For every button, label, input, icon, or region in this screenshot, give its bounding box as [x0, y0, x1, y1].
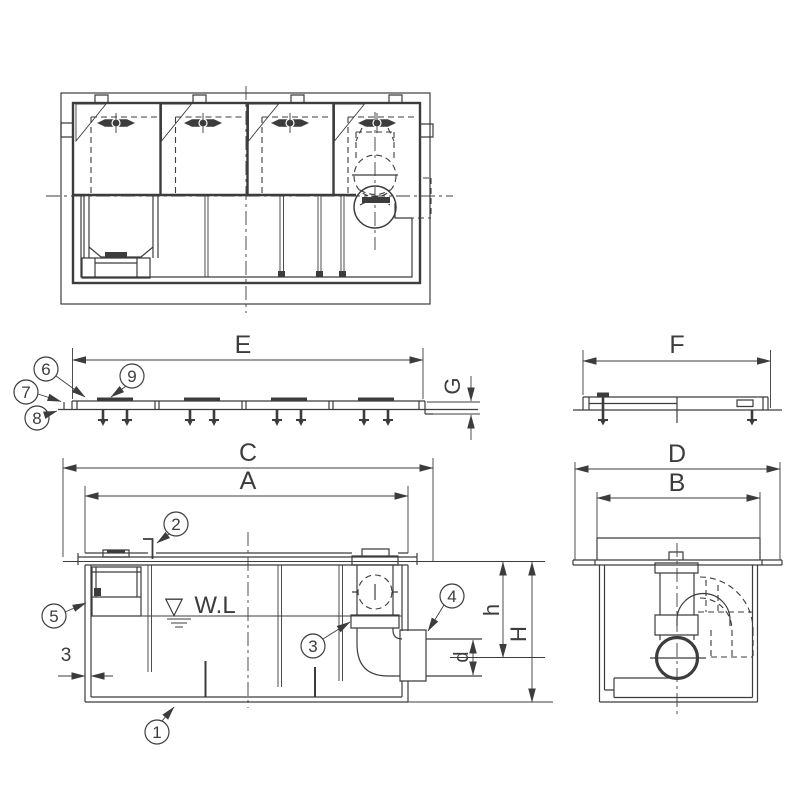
dim-label-A: A	[240, 467, 257, 495]
callout-number-8: 8	[32, 409, 41, 428]
lid-handle-icon	[184, 113, 222, 133]
dim-label-F: F	[669, 331, 684, 359]
dim-label-wall-thickness: 3	[61, 645, 72, 666]
water-level-mark: ▽ W.L	[165, 592, 236, 627]
callout-6: 6	[34, 357, 85, 397]
plan-baffle-feet	[278, 271, 346, 277]
lid-anchor-stems	[103, 410, 388, 421]
lid-frame-lines	[58, 401, 478, 414]
technical-drawing-page: E G 6 7 8 9 F	[0, 0, 800, 800]
leader-3	[323, 622, 350, 639]
inlet-pipe-stub	[143, 539, 153, 559]
callout-4: 4	[428, 584, 464, 631]
section-view: C A ▽ W.L 3 d h H 1	[42, 439, 553, 744]
callout-number-3: 3	[308, 637, 317, 656]
callout-7: 7	[14, 380, 61, 404]
water-level-ticks	[167, 619, 191, 627]
dim-label-G: G	[440, 377, 465, 394]
lid-handle-icon	[97, 113, 135, 133]
callout-9: 9	[111, 364, 144, 397]
end-elbow-hidden-lines	[698, 577, 753, 657]
callout-5: 5	[42, 603, 86, 628]
section-weirs	[206, 661, 316, 697]
dim-label-H: H	[506, 626, 531, 642]
callout-number-2: 2	[171, 515, 180, 534]
dim-label-E: E	[235, 331, 252, 359]
lid-end-handle-cap	[597, 393, 609, 398]
callout-2: 2	[157, 512, 188, 543]
basket-handle-bar	[105, 252, 127, 257]
lid-side-view: E G 6 7 8 9	[14, 331, 480, 440]
dim-label-B: B	[669, 469, 686, 497]
callout-number-6: 6	[41, 360, 50, 379]
lid-handle-icon	[358, 113, 396, 133]
callout-8: 8	[25, 406, 57, 430]
leader-1	[162, 707, 174, 721]
callout-number-1: 1	[152, 723, 161, 742]
plan-baffle-plates	[205, 196, 344, 277]
leader-8	[48, 411, 57, 414]
plan-view	[46, 86, 453, 313]
callout-1: 1	[145, 707, 174, 744]
callout-number-4: 4	[447, 587, 456, 606]
grease-trap-drawing: E G 6 7 8 9 F	[0, 0, 800, 800]
lid-end-view: F	[573, 331, 782, 426]
section-baffles	[148, 565, 343, 687]
plan-strainer-basket	[82, 196, 158, 278]
section-strainer-basket	[92, 550, 141, 616]
dim-label-h: h	[479, 604, 504, 616]
dim-label-C: C	[239, 439, 257, 467]
callout-number-9: 9	[127, 367, 136, 386]
water-level-symbol: ▽	[165, 593, 184, 620]
leader-2	[157, 534, 169, 543]
water-level-label: W.L	[194, 592, 235, 619]
callout-number-7: 7	[21, 383, 30, 402]
dim-label-d: d	[451, 651, 473, 662]
leader-4	[428, 605, 444, 631]
lid-handle-icon	[271, 113, 309, 133]
basket-outline	[82, 196, 158, 278]
end-section-view: D B	[573, 440, 782, 716]
callout-number-5: 5	[49, 607, 58, 626]
leader-6	[56, 376, 85, 397]
leader-5	[65, 603, 86, 612]
outlet-pipe-plan-bar	[362, 197, 390, 203]
leader-9	[111, 386, 126, 397]
leader-7	[38, 394, 61, 402]
lid-anchor-tips	[100, 420, 391, 426]
dim-label-D: D	[668, 440, 686, 468]
basket-section-outline	[92, 550, 141, 616]
